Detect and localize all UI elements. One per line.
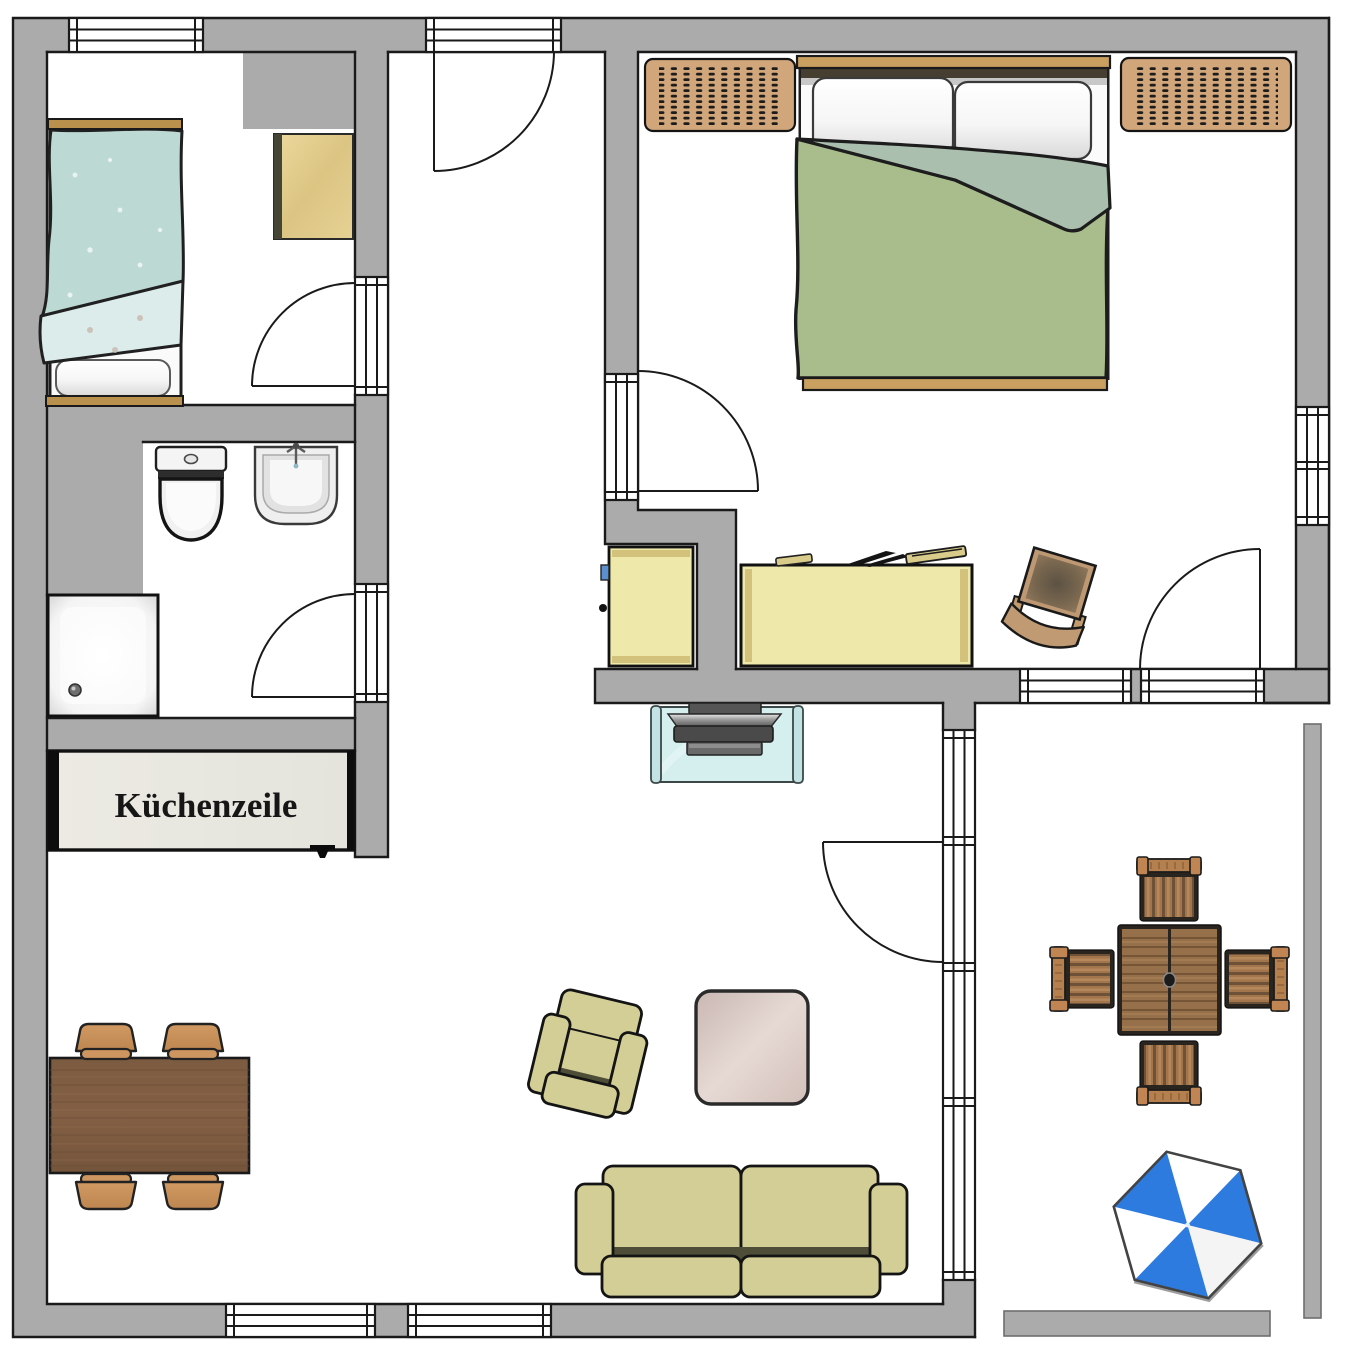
- svg-text:Küchenzeile: Küchenzeile: [115, 786, 298, 825]
